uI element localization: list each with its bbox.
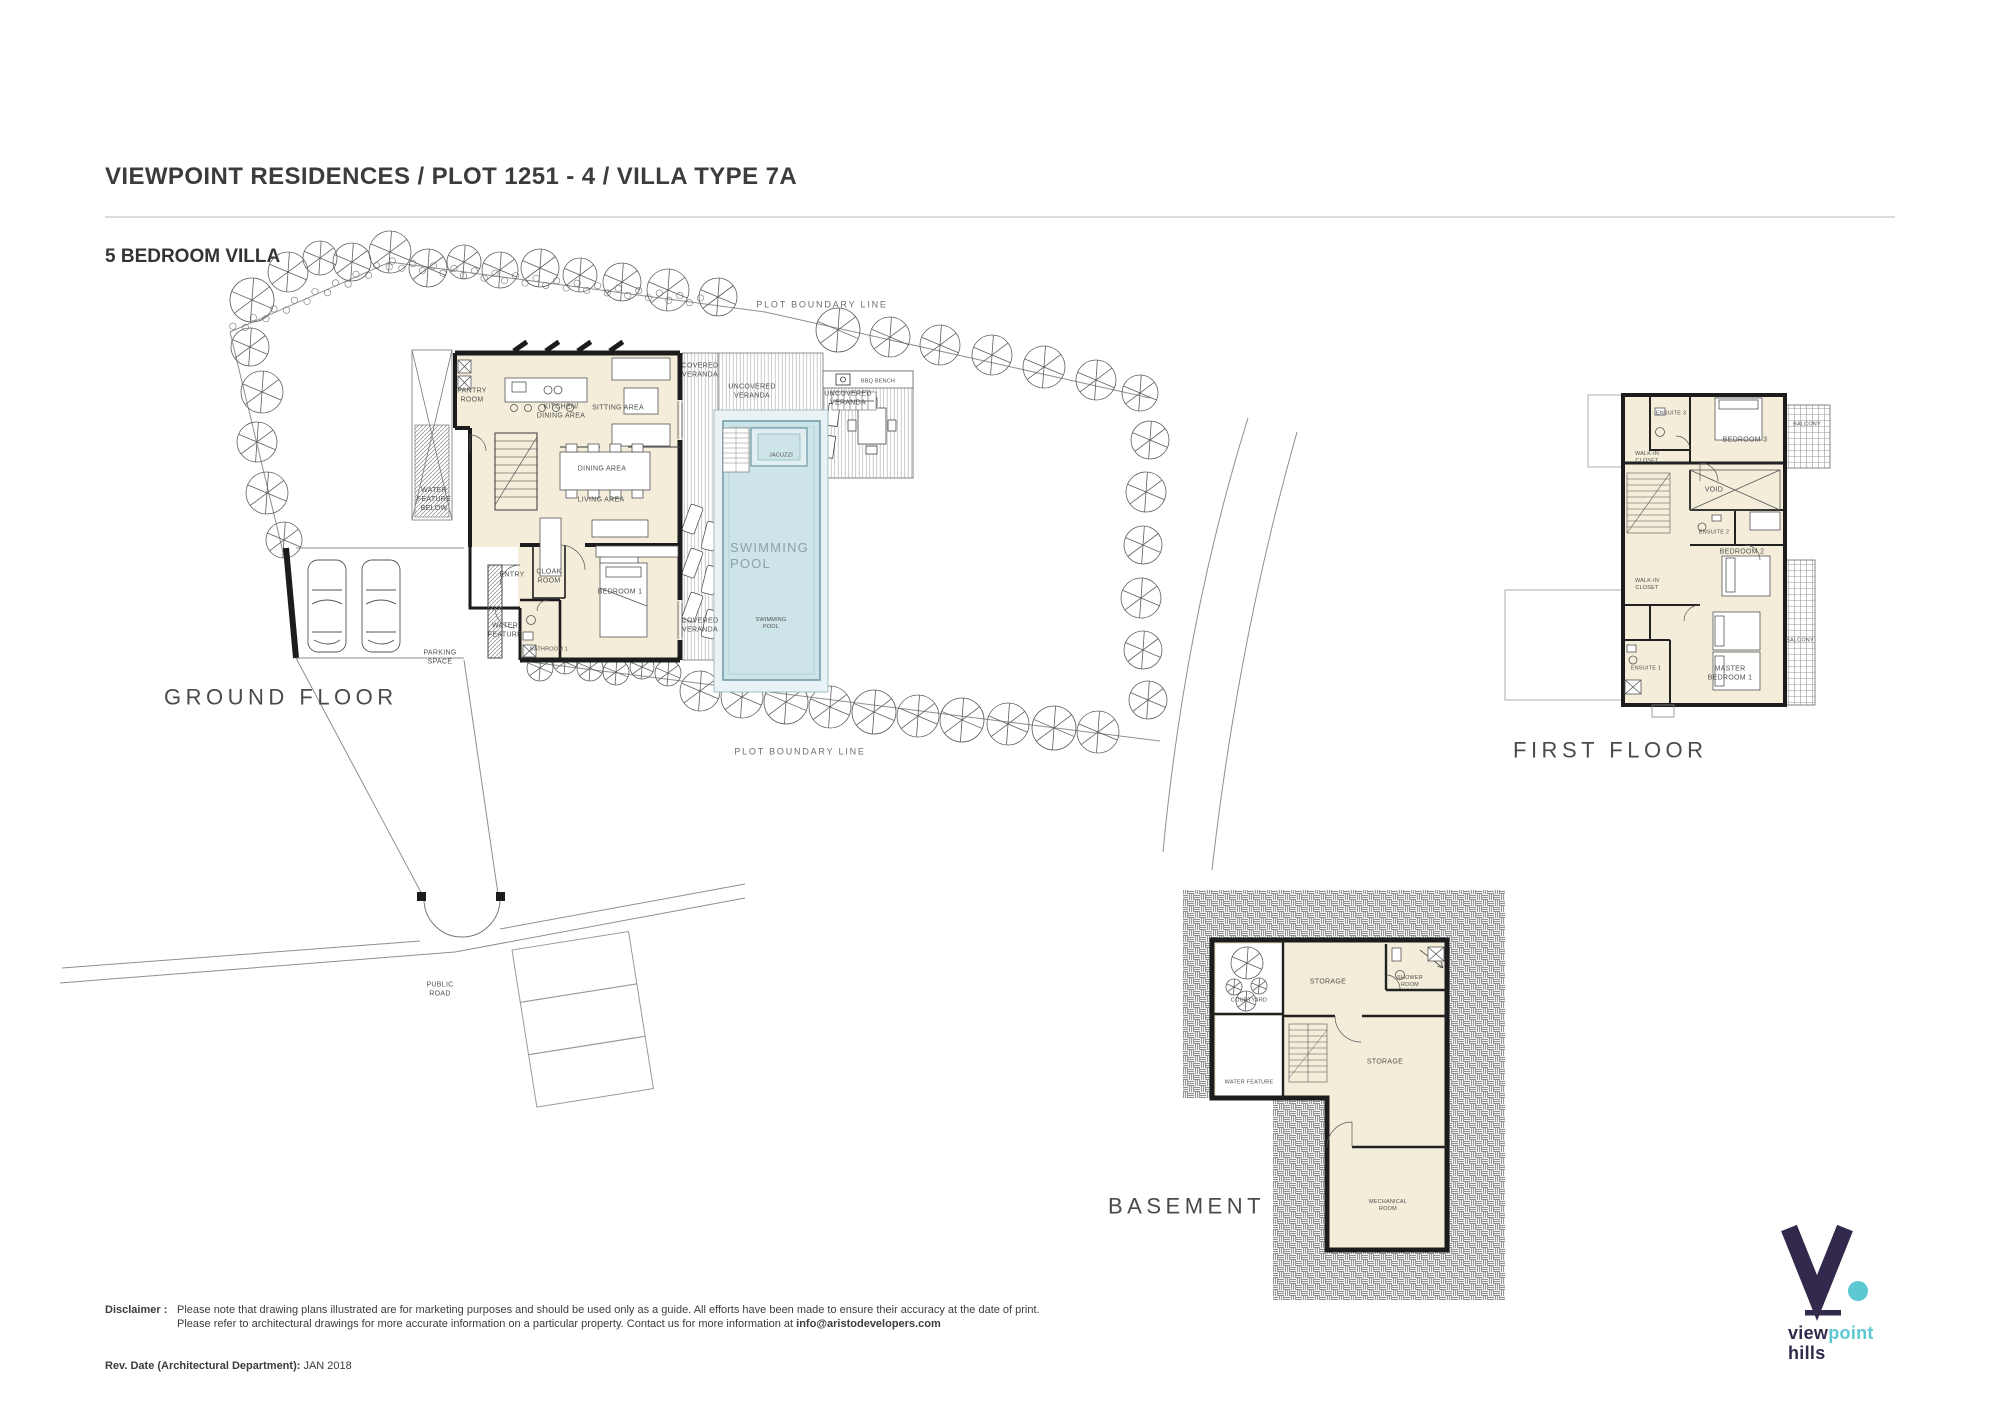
disclaimer-line1: Please note that drawing plans illustrat… <box>177 1303 1040 1317</box>
floor-plan-page: VIEWPOINT RESIDENCES / PLOT 1251 - 4 / V… <box>0 0 2000 1414</box>
parking <box>286 548 464 658</box>
car-icon <box>362 560 400 652</box>
disclaimer-line2: Please refer to architectural drawings f… <box>177 1318 796 1330</box>
villa-ground-floor <box>455 340 682 660</box>
stairs <box>495 433 537 510</box>
first-floor-plan <box>1505 395 1830 717</box>
logo-word-view: view <box>1788 1323 1828 1343</box>
revision-date-value: JAN 2018 <box>303 1360 351 1372</box>
viewpoint-hills-logo: viewpoint hills <box>1765 1218 1925 1378</box>
ground-floor-plan <box>60 231 1297 1107</box>
disclaimer: Disclaimer : Please note that drawing pl… <box>105 1303 1040 1331</box>
car-icon <box>308 560 346 652</box>
water-feature-courtyard <box>412 350 452 520</box>
logo-word-point: point <box>1828 1323 1873 1343</box>
pool-ladder <box>832 392 876 410</box>
entry-water-feature <box>488 565 502 658</box>
logo-word-hills: hills <box>1788 1343 1826 1363</box>
disclaimer-label: Disclaimer : <box>105 1303 177 1317</box>
basement-plan <box>1183 890 1505 1300</box>
revision-date: Rev. Date (Architectural Department): JA… <box>105 1360 352 1372</box>
stairs <box>1289 1024 1327 1082</box>
revision-date-label: Rev. Date (Architectural Department): <box>105 1360 300 1372</box>
disclaimer-email: info@aristodevelopers.com <box>796 1318 941 1330</box>
logo-wordmark: viewpoint hills <box>1788 1323 1874 1363</box>
floor-plan-drawing <box>0 0 2000 1414</box>
